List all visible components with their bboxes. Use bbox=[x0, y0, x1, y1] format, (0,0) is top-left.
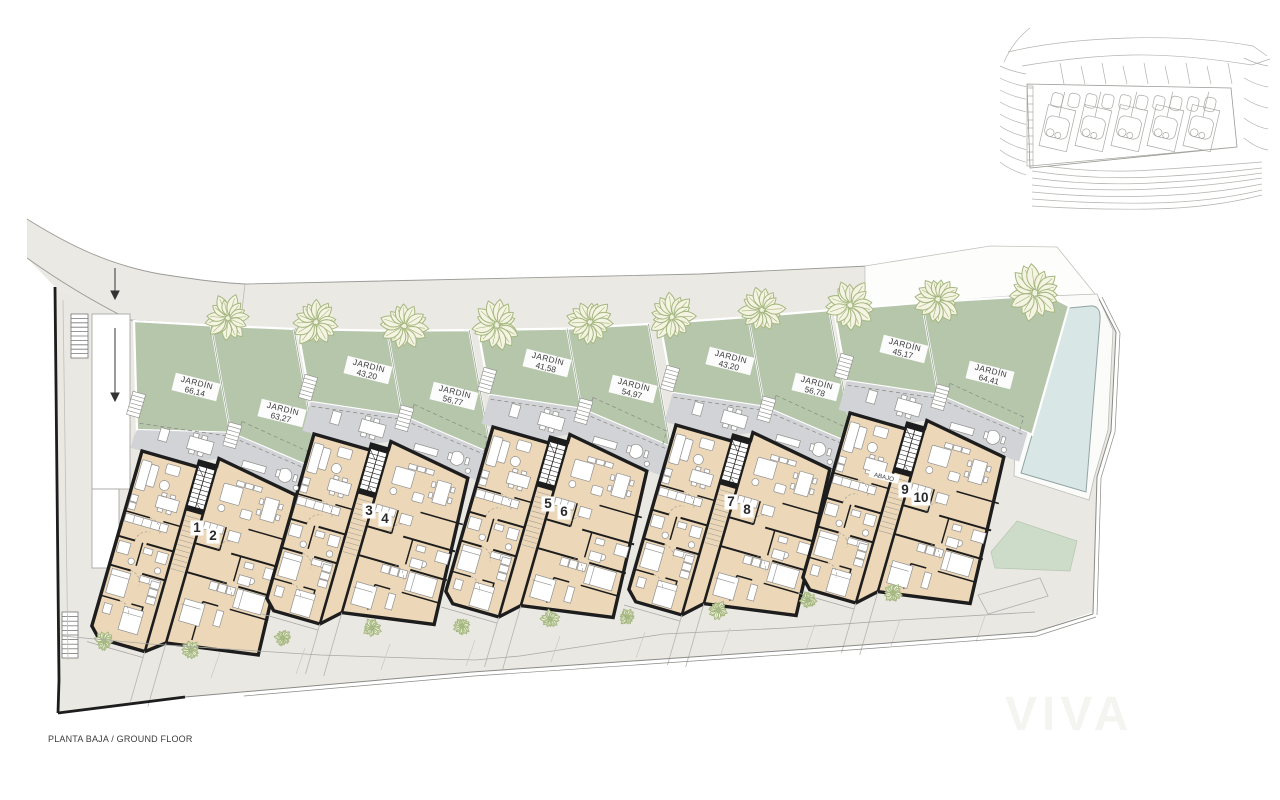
svg-text:3: 3 bbox=[365, 503, 373, 518]
svg-text:9: 9 bbox=[901, 482, 909, 497]
svg-text:1: 1 bbox=[193, 520, 201, 535]
svg-text:8: 8 bbox=[743, 502, 751, 517]
svg-text:4: 4 bbox=[381, 511, 389, 526]
svg-text:5: 5 bbox=[544, 496, 552, 511]
svg-text:2: 2 bbox=[209, 528, 217, 543]
svg-text:VIVA: VIVA bbox=[1005, 688, 1133, 741]
svg-text:PLANTA BAJA / GROUND FLOOR: PLANTA BAJA / GROUND FLOOR bbox=[48, 734, 193, 744]
svg-text:7: 7 bbox=[727, 494, 735, 509]
svg-text:6: 6 bbox=[560, 504, 568, 519]
svg-text:10: 10 bbox=[913, 490, 928, 505]
